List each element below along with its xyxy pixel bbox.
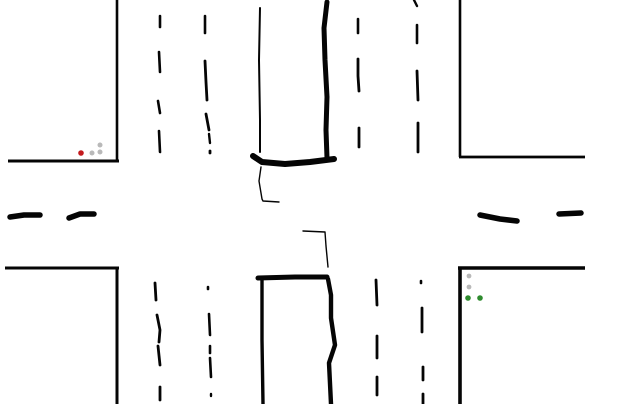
signal-light-green-on-1: [465, 295, 471, 301]
stop-lines: [253, 2, 335, 404]
drawn-stopbar-top-bottom: [253, 156, 334, 164]
signal-light-off-1: [90, 151, 95, 156]
lane-dash-sw-col2-4: [210, 358, 211, 377]
pen-path-lower: [303, 231, 328, 267]
lane-dash-ne-col1-2: [358, 59, 359, 91]
signal-light-off-2: [467, 285, 472, 290]
signal-light-off-2: [98, 143, 103, 148]
signal-cluster-top-left: [78, 143, 102, 156]
lane-dashes: [155, 0, 423, 404]
median-dashes: [10, 213, 581, 221]
lane-dash-se-col1-1: [376, 280, 377, 305]
lane-dash-ne-col2-3: [417, 71, 418, 100]
lane-dash-nw-col1-2: [159, 52, 160, 72]
signal-light-red-on: [78, 150, 84, 156]
lane-dash-nw-col2-2: [205, 61, 207, 100]
drawn-curb-bottom-left: [262, 279, 263, 404]
lane-dash-ne-col2-1: [414, 0, 417, 6]
lane-dash-sw-col2-2: [209, 314, 210, 335]
median-dash-east-1: [480, 215, 517, 221]
lane-dash-nw-col2-4: [209, 134, 210, 143]
lane-dash-nw-col1-4: [159, 131, 160, 152]
lane-dash-nw-col2-3: [206, 114, 209, 130]
turn-paths: [259, 167, 328, 267]
drawn-curb-top-left-thin: [259, 8, 260, 152]
lane-dash-nw-col1-3: [158, 101, 160, 113]
drawn-curb-top-right-thick: [324, 2, 327, 158]
signal-light-off-1: [467, 274, 472, 279]
drawn-stopbar-bottom-top: [258, 277, 327, 278]
intersection-sketch: [0, 0, 640, 404]
signal-light-green-on-2: [477, 295, 483, 301]
lane-dash-sw-col1-3: [158, 346, 160, 365]
road-edges: [5, 0, 585, 404]
drawn-curb-bottom-right-wavy: [328, 279, 335, 404]
intersection-sketch-svg: [0, 0, 640, 404]
pen-path-upper: [259, 167, 279, 202]
median-dash-east-2: [559, 213, 581, 214]
lane-dash-sw-col1-2: [157, 315, 160, 342]
median-dash-west-2: [69, 214, 94, 218]
lane-dash-sw-col1-1: [155, 283, 156, 300]
signal-light-off-3: [98, 150, 103, 155]
signal-cluster-bottom-right: [465, 274, 483, 301]
median-dash-west-1: [10, 215, 40, 217]
